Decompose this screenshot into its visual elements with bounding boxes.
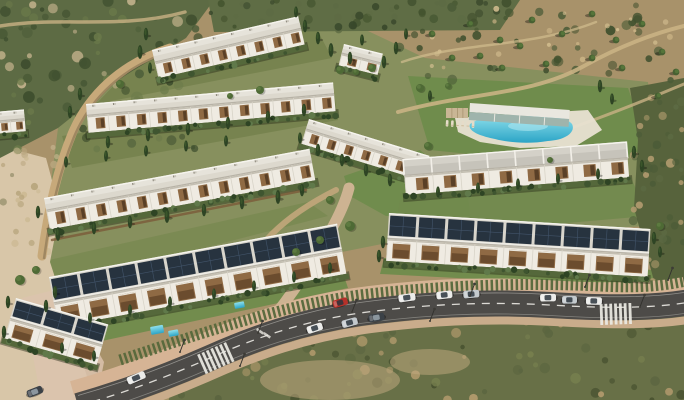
dirt-patch	[260, 360, 400, 400]
dirt-patch	[390, 349, 470, 375]
car	[561, 296, 579, 305]
pergola	[446, 108, 468, 118]
scene-canvas	[0, 0, 684, 400]
aerial-development-render	[0, 0, 684, 400]
